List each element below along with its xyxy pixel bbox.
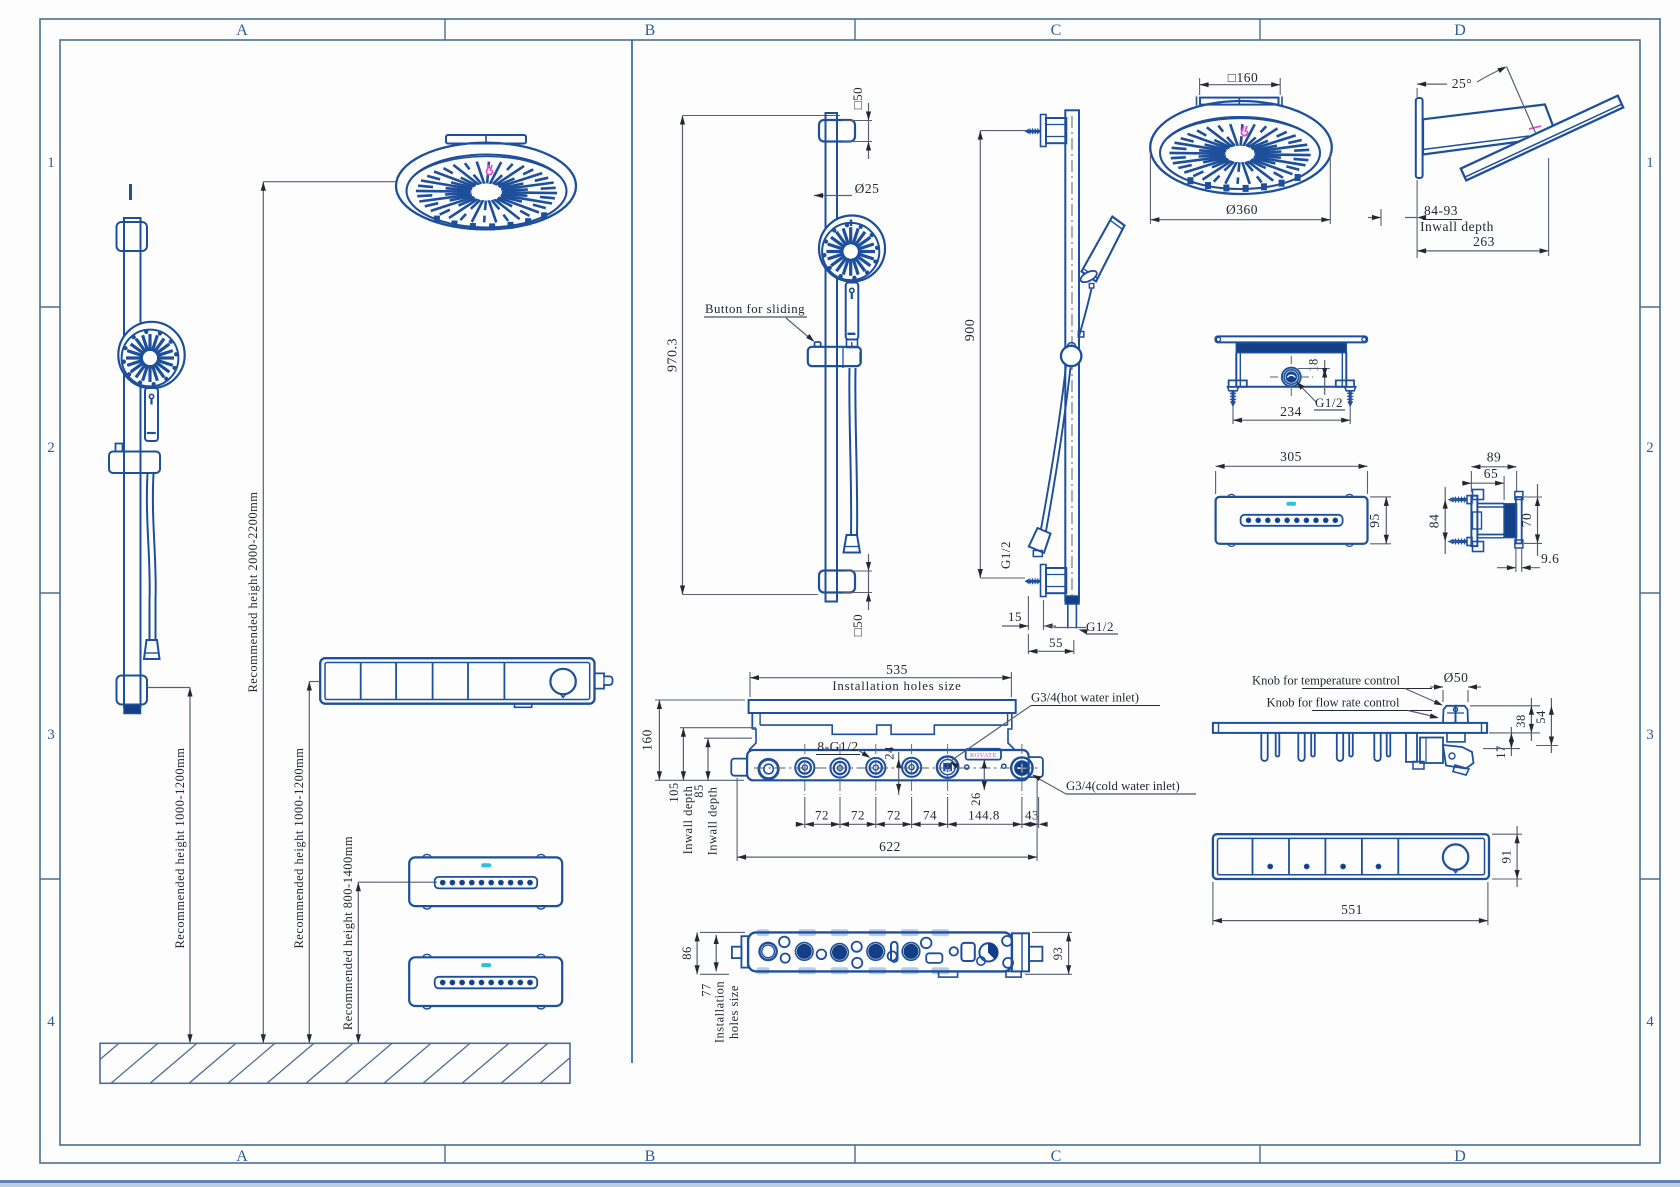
svg-text:Ø25: Ø25 [855, 181, 880, 196]
svg-text:Inwall depth: Inwall depth [706, 786, 720, 855]
svg-text:4: 4 [47, 1014, 55, 1030]
svg-text:3: 3 [1646, 727, 1654, 743]
svg-text:□50: □50 [850, 614, 865, 636]
svg-text:G1/2: G1/2 [1315, 395, 1343, 410]
svg-text:38: 38 [1514, 714, 1528, 728]
svg-text:D: D [1454, 1148, 1466, 1165]
svg-text:4: 4 [1646, 1014, 1654, 1030]
svg-text:Recommended height 1000-1200mm: Recommended height 1000-1200mm [292, 747, 306, 948]
svg-text:C: C [1051, 22, 1062, 39]
svg-text:622: 622 [879, 839, 901, 854]
svg-text:Installation holes size: Installation holes size [832, 679, 961, 693]
svg-text:D: D [1454, 22, 1466, 39]
svg-text:551: 551 [1341, 902, 1363, 917]
svg-text:G3/4(cold water inlet): G3/4(cold water inlet) [1066, 779, 1180, 793]
svg-text:54: 54 [1534, 710, 1548, 724]
svg-text:95: 95 [1367, 513, 1382, 528]
svg-text:B: B [645, 1148, 656, 1165]
svg-text:91: 91 [1499, 850, 1514, 864]
svg-text:93: 93 [1051, 947, 1065, 961]
svg-text:85: 85 [692, 784, 706, 798]
svg-text:24: 24 [883, 746, 897, 760]
svg-text:Recommended height 1000-1200mm: Recommended height 1000-1200mm [173, 747, 187, 948]
svg-text:65: 65 [1484, 466, 1499, 481]
svg-text:263: 263 [1473, 234, 1495, 249]
svg-text:Ø360: Ø360 [1226, 202, 1258, 217]
svg-text:B: B [645, 22, 656, 39]
svg-text:1: 1 [1646, 155, 1654, 171]
svg-text:Ø50: Ø50 [1444, 670, 1469, 685]
svg-text:Installation: Installation [713, 981, 727, 1043]
svg-text:□160: □160 [1228, 70, 1258, 85]
svg-text:535: 535 [886, 662, 908, 677]
svg-text:18: 18 [1307, 358, 1321, 372]
svg-text:Knob for temperature control: Knob for temperature control [1252, 674, 1400, 688]
svg-text:26: 26 [969, 792, 983, 806]
svg-text:84: 84 [1427, 514, 1442, 529]
svg-text:84-93: 84-93 [1424, 203, 1458, 218]
svg-text:105: 105 [667, 782, 681, 802]
svg-text:□50: □50 [850, 87, 865, 109]
svg-text:9.6: 9.6 [1541, 551, 1559, 566]
svg-text:89: 89 [1487, 450, 1502, 465]
svg-text:A: A [236, 22, 248, 39]
svg-text:15: 15 [1008, 609, 1022, 624]
svg-text:G1/2: G1/2 [1086, 619, 1114, 634]
svg-text:ROVATE: ROVATE [970, 752, 997, 759]
svg-text:305: 305 [1280, 449, 1302, 464]
svg-text:25°: 25° [1452, 76, 1472, 91]
svg-text:Recommended height 2000-2200mm: Recommended height 2000-2200mm [246, 491, 260, 692]
svg-text:160: 160 [640, 729, 655, 751]
svg-text:C: C [1051, 1148, 1062, 1165]
svg-text:Knob for flow rate control: Knob for flow rate control [1267, 696, 1400, 710]
svg-text:holes size: holes size [727, 985, 741, 1039]
svg-text:2: 2 [47, 440, 55, 456]
svg-text:Button for sliding: Button for sliding [705, 302, 805, 316]
svg-text:A: A [236, 1148, 248, 1165]
svg-text:3: 3 [47, 727, 55, 743]
svg-text:77: 77 [700, 983, 714, 997]
svg-text:2: 2 [1646, 440, 1654, 456]
svg-text:74: 74 [923, 808, 937, 823]
svg-text:234: 234 [1280, 404, 1302, 419]
svg-text:72: 72 [851, 808, 865, 823]
svg-text:G3/4(hot water inlet): G3/4(hot water inlet) [1031, 691, 1139, 705]
svg-text:72: 72 [815, 808, 829, 823]
svg-text:86: 86 [680, 946, 694, 960]
svg-text:70: 70 [1519, 513, 1534, 528]
svg-text:900: 900 [963, 319, 978, 342]
svg-text:144.8: 144.8 [968, 808, 1000, 823]
svg-text:Inwall depth: Inwall depth [1420, 219, 1494, 234]
svg-text:Recommended height 800-1400mm: Recommended height 800-1400mm [341, 836, 355, 1030]
svg-text:8-G1/2: 8-G1/2 [817, 739, 858, 754]
svg-text:17: 17 [1494, 745, 1508, 759]
svg-text:1: 1 [47, 155, 55, 171]
svg-text:55: 55 [1049, 635, 1063, 650]
svg-text:G1/2: G1/2 [998, 541, 1013, 569]
svg-text:72: 72 [887, 808, 901, 823]
svg-text:970.3: 970.3 [666, 338, 681, 372]
